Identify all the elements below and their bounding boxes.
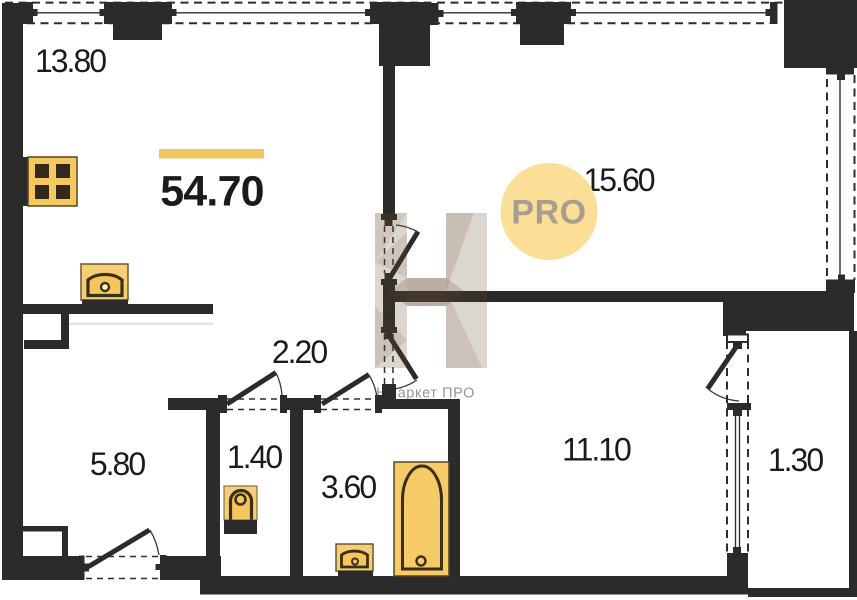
svg-text:PRO: PRO [511, 194, 586, 232]
svg-text:2.20: 2.20 [272, 334, 327, 370]
svg-text:5.80: 5.80 [90, 446, 145, 482]
svg-text:54.70: 54.70 [160, 168, 264, 216]
svg-text:15.60: 15.60 [583, 162, 654, 198]
svg-text:3.60: 3.60 [321, 469, 376, 505]
svg-text:13.80: 13.80 [35, 43, 106, 79]
svg-text:1.40: 1.40 [227, 439, 282, 475]
svg-text:1.30: 1.30 [768, 442, 823, 478]
svg-text:11.10: 11.10 [562, 432, 631, 468]
